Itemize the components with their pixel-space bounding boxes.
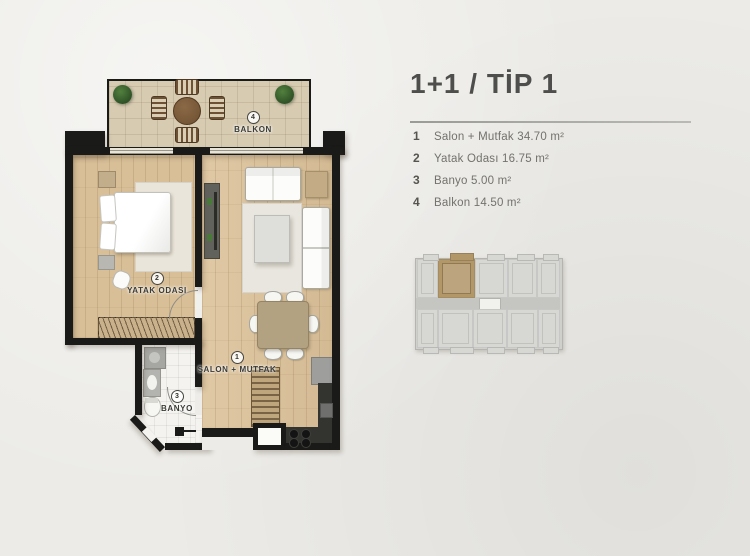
minimap-balcony-tab	[423, 254, 439, 261]
bed-pillow	[99, 222, 117, 250]
balcony-chair	[175, 79, 199, 95]
room-name: BANYO	[154, 404, 200, 413]
shaft	[258, 428, 281, 445]
minimap-balcony-tab	[450, 347, 474, 354]
minimap-unit	[537, 259, 560, 298]
floor-plan: 4 BALKON 2 YATAK ODASI 1 SALON + MUTFAK …	[65, 75, 345, 460]
minimap-balcony-tab	[543, 347, 559, 354]
minimap-unit	[508, 259, 537, 298]
tv-unit	[204, 183, 220, 259]
legend-item: 1Salon + Mutfak 34.70 m²	[413, 129, 564, 151]
legend-item-text: Yatak Odası 16.75 m²	[425, 153, 549, 165]
minimap-unit	[417, 259, 438, 298]
building-key-plan	[415, 253, 563, 353]
room-name: SALON + MUTFAK	[192, 365, 282, 374]
page: 4 BALKON 2 YATAK ODASI 1 SALON + MUTFAK …	[0, 0, 750, 556]
sofa	[245, 167, 301, 201]
minimap-balcony-tab	[517, 254, 535, 261]
room-number-badge: 4	[247, 111, 260, 124]
salon-label: 1 SALON + MUTFAK	[192, 346, 282, 374]
dining-table	[257, 301, 309, 349]
page-title: 1+1 / TİP 1	[410, 68, 558, 100]
sofa	[302, 207, 330, 289]
background-patch	[202, 437, 253, 450]
stove-burner	[301, 438, 311, 448]
balcony-door-bedroom	[110, 148, 173, 154]
entrance-door-mark	[175, 427, 184, 436]
wall-under-hall	[202, 428, 257, 437]
legend-item-number: 3	[413, 173, 425, 187]
minimap-unit	[473, 309, 507, 348]
bed-pillow	[99, 194, 117, 222]
legend-item: 4Balkon 14.50 m²	[413, 195, 564, 217]
minimap-unit	[417, 309, 438, 348]
wall-left	[65, 155, 73, 345]
wardrobe	[98, 317, 195, 339]
legend-item-number: 2	[413, 151, 425, 165]
minimap-unit	[438, 309, 473, 348]
room-name: BALKON	[223, 125, 283, 134]
minimap-balcony-tab	[423, 347, 439, 354]
legend-item-number: 1	[413, 129, 425, 143]
legend-item-text: Balkon 14.50 m²	[425, 197, 521, 209]
legend-item-text: Banyo 5.00 m²	[425, 175, 511, 187]
legend-item: 2Yatak Odası 16.75 m²	[413, 151, 564, 173]
wall-bathroom-left	[135, 345, 142, 415]
fridge	[311, 357, 334, 385]
room-number-badge: 3	[171, 390, 184, 403]
legend-item-text: Salon + Mutfak 34.70 m²	[425, 131, 564, 143]
minimap-unit	[538, 309, 560, 348]
side-table	[305, 171, 328, 198]
balcony-table	[173, 97, 201, 125]
wall-bedroom-bottom	[65, 338, 202, 345]
balcony-chair	[151, 96, 167, 120]
minimap-balcony-tab	[517, 347, 535, 354]
washer-drum	[149, 352, 160, 363]
bathroom-label: 3 BANYO	[154, 385, 200, 413]
washer	[144, 347, 166, 369]
plant	[207, 198, 212, 205]
stove-burner	[289, 438, 299, 448]
legend-item: 3Banyo 5.00 m²	[413, 173, 564, 195]
bed	[97, 191, 170, 253]
balcony-chair	[175, 127, 199, 143]
room-number-badge: 2	[151, 272, 164, 285]
legend: 1Salon + Mutfak 34.70 m²2Yatak Odası 16.…	[413, 129, 564, 217]
bedroom-label: 2 YATAK ODASI	[122, 267, 192, 295]
coffee-table	[254, 215, 290, 263]
minimap-balcony-tab	[487, 254, 505, 261]
bench	[98, 255, 115, 270]
minimap-unit-highlighted	[438, 259, 475, 298]
nightstand	[98, 171, 116, 188]
room-number-badge: 1	[231, 351, 244, 364]
bed-duvet	[114, 192, 171, 253]
wall-top	[65, 147, 345, 155]
plant	[275, 85, 294, 104]
tv-screen	[214, 192, 217, 250]
pantry-cabinet	[251, 367, 280, 427]
plant	[113, 85, 132, 104]
balcony-label: 4 BALKON	[223, 106, 283, 134]
minimap-unit	[475, 259, 508, 298]
wall-divider-top	[195, 155, 202, 287]
balcony-door-salon	[210, 148, 303, 154]
room-name: YATAK ODASI	[122, 286, 192, 295]
wall-right	[332, 147, 340, 450]
title-divider	[410, 121, 691, 123]
plant	[207, 234, 212, 241]
entry-floor	[195, 415, 202, 443]
minimap-balcony-tab	[543, 254, 559, 261]
entrance-door-stem	[184, 430, 196, 432]
wall-entry-bottom	[165, 443, 202, 450]
minimap-balcony-tab-highlighted	[450, 253, 474, 261]
kitchen-sink	[320, 403, 333, 418]
legend-item-number: 4	[413, 195, 425, 209]
minimap-unit	[507, 309, 538, 348]
minimap-balcony-tab	[487, 347, 505, 354]
